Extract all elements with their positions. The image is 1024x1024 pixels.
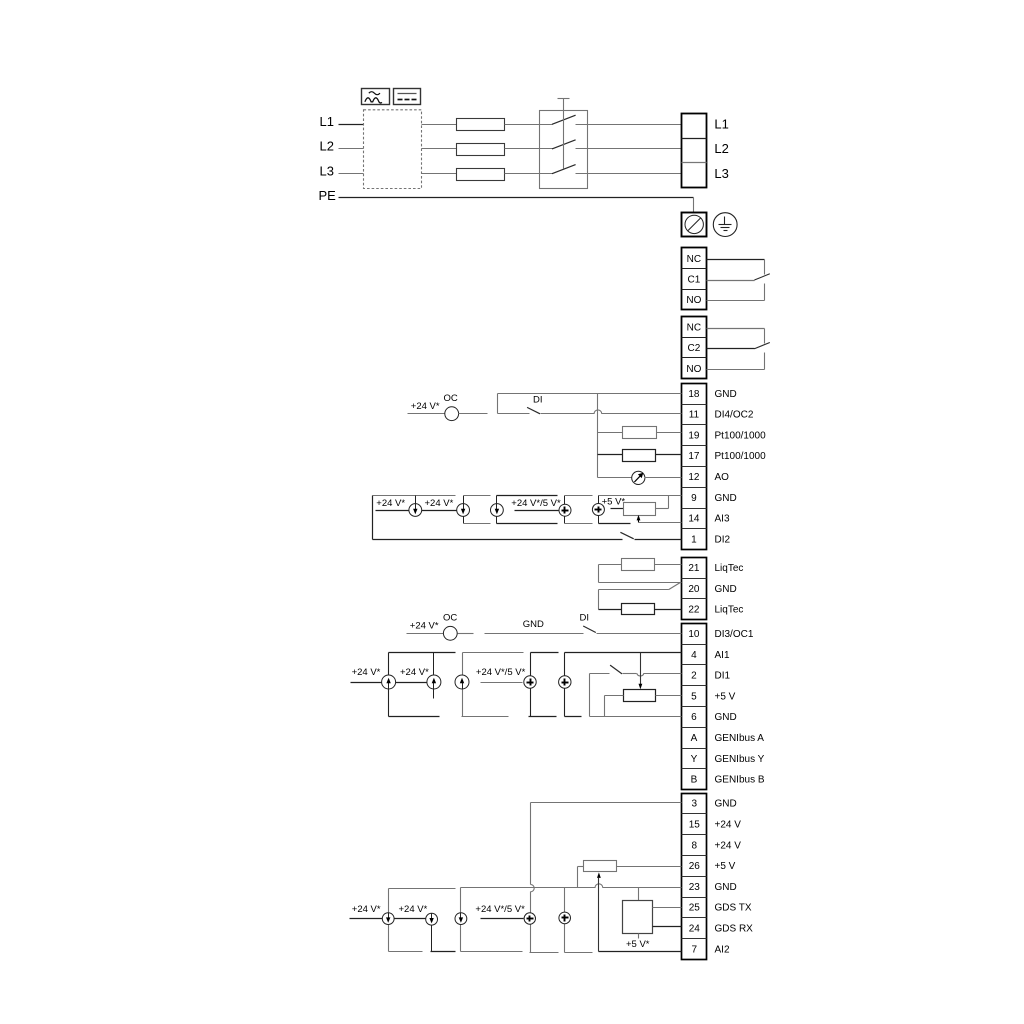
svg-text:12: 12 [688,472,700,483]
svg-text:L3: L3 [320,163,334,178]
svg-text:17: 17 [688,451,700,462]
svg-text:GND: GND [715,882,737,893]
svg-text:LiqTec: LiqTec [715,563,744,574]
svg-text:GND: GND [523,619,544,630]
svg-text:+24 V*/5 V*: +24 V*/5 V* [476,667,526,678]
svg-text:GND: GND [715,712,737,723]
svg-text:15: 15 [689,820,701,831]
svg-text:OC: OC [443,613,457,624]
svg-text:+24 V*: +24 V* [352,904,381,915]
svg-text:NO: NO [686,364,701,375]
svg-text:4: 4 [691,650,697,661]
svg-text:5: 5 [691,691,697,702]
svg-text:L1: L1 [714,117,728,132]
svg-text:GND: GND [715,584,737,595]
svg-text:GND: GND [715,493,737,504]
svg-text:1: 1 [691,534,697,545]
svg-text:10: 10 [688,629,700,640]
svg-text:+24 V*: +24 V* [399,904,428,915]
svg-text:3: 3 [692,799,698,810]
svg-text:NC: NC [687,323,701,334]
svg-text:+5 V: +5 V [715,861,736,872]
svg-text:C1: C1 [688,274,701,285]
svg-text:+24 V*: +24 V* [425,498,454,509]
svg-text:C2: C2 [688,343,701,354]
svg-text:+24 V*/5 V*: +24 V*/5 V* [511,498,561,509]
svg-text:AI2: AI2 [715,944,730,955]
svg-text:DI: DI [533,395,543,406]
svg-text:L2: L2 [320,139,334,154]
svg-text:L2: L2 [714,141,728,156]
svg-text:+24 V*: +24 V* [376,498,405,509]
svg-text:7: 7 [692,944,698,955]
svg-text:AO: AO [715,472,730,483]
svg-text:+5 V: +5 V [715,691,736,702]
svg-text:+5 V*: +5 V* [626,939,650,950]
svg-text:+24 V*: +24 V* [411,401,440,412]
svg-text:OC: OC [444,393,458,404]
svg-text:+24 V*/5 V*: +24 V*/5 V* [475,904,525,915]
svg-text:23: 23 [689,882,701,893]
svg-text:GDS TX: GDS TX [715,903,752,914]
svg-text:+24 V: +24 V [715,820,742,831]
svg-text:PE: PE [319,188,337,203]
svg-text:+24 V*: +24 V* [352,667,381,678]
svg-text:NO: NO [686,295,701,306]
svg-text:GND: GND [715,799,737,810]
svg-text:DI: DI [580,613,590,624]
svg-text:+5 V*: +5 V* [602,496,626,507]
svg-text:B: B [691,775,698,786]
svg-text:+24 V*: +24 V* [400,667,429,678]
svg-text:NC: NC [687,254,701,265]
svg-text:24: 24 [689,924,701,935]
svg-text:22: 22 [688,605,700,616]
svg-text:21: 21 [688,563,700,574]
svg-text:LiqTec: LiqTec [715,605,744,616]
svg-text:8: 8 [692,840,698,851]
svg-text:DI2: DI2 [715,534,731,545]
svg-text:2: 2 [691,671,697,682]
svg-text:GENIbus B: GENIbus B [715,775,765,786]
svg-text:L3: L3 [714,166,728,181]
svg-text:DI1: DI1 [715,671,731,682]
svg-text:26: 26 [689,861,701,872]
svg-text:11: 11 [689,410,700,421]
svg-text:DI3/OC1: DI3/OC1 [715,629,754,640]
svg-text:GENIbus Y: GENIbus Y [715,754,765,765]
svg-text:+24 V: +24 V [715,840,742,851]
svg-text:25: 25 [689,903,701,914]
svg-text:6: 6 [691,712,697,723]
svg-text:18: 18 [688,389,700,400]
svg-text:GND: GND [715,389,737,400]
svg-text:Pt100/1000: Pt100/1000 [715,451,767,462]
svg-text:GDS RX: GDS RX [715,924,754,935]
svg-text:20: 20 [688,584,700,595]
svg-text:A: A [691,733,698,744]
svg-text:DI4/OC2: DI4/OC2 [715,410,754,421]
svg-text:AI1: AI1 [715,650,730,661]
svg-text:14: 14 [688,514,700,525]
svg-text:GENIbus A: GENIbus A [715,733,765,744]
svg-text:AI3: AI3 [715,514,730,525]
svg-text:Pt100/1000: Pt100/1000 [715,430,767,441]
svg-text:9: 9 [691,493,697,504]
svg-text:19: 19 [688,430,700,441]
svg-text:Y: Y [691,754,698,765]
svg-text:L1: L1 [320,114,334,129]
svg-text:+24 V*: +24 V* [410,621,439,632]
